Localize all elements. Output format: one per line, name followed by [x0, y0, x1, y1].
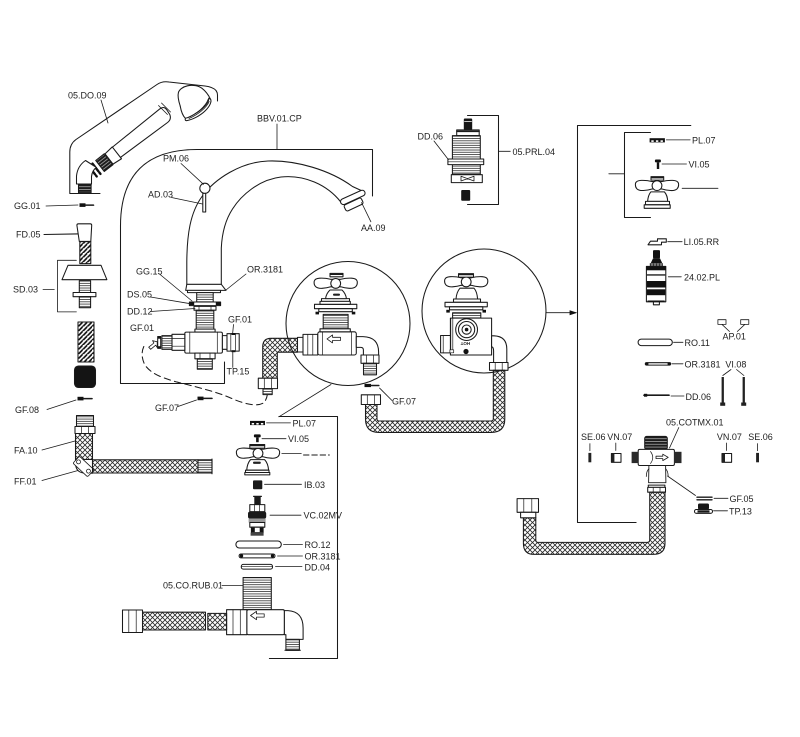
svg-text:PL.07: PL.07 — [692, 136, 716, 146]
svg-text:DD.04: DD.04 — [305, 563, 331, 573]
svg-text:DD.12: DD.12 — [127, 307, 153, 317]
svg-text:VN.07: VN.07 — [717, 432, 742, 442]
svg-text:IB.03: IB.03 — [304, 480, 325, 490]
svg-text:FA.10: FA.10 — [14, 446, 38, 456]
svg-text:VC.02MV: VC.02MV — [304, 511, 343, 521]
svg-text:RO.12: RO.12 — [305, 540, 331, 550]
svg-text:DD.06: DD.06 — [686, 392, 712, 402]
svg-text:LI.05.RR: LI.05.RR — [684, 237, 720, 247]
svg-text:FF.01: FF.01 — [14, 477, 37, 487]
svg-text:OR.3181: OR.3181 — [305, 552, 341, 562]
svg-text:GG.15: GG.15 — [136, 267, 163, 277]
svg-text:TP.15: TP.15 — [227, 367, 250, 377]
svg-text:RO.11: RO.11 — [685, 338, 710, 348]
svg-text:SE.06: SE.06 — [748, 432, 773, 442]
svg-text:GF.05: GF.05 — [730, 494, 754, 504]
svg-text:VN.07: VN.07 — [607, 432, 632, 442]
svg-text:GF.07: GF.07 — [392, 397, 416, 407]
svg-text:AD.03: AD.03 — [148, 190, 173, 200]
svg-text:05.COTMX.01: 05.COTMX.01 — [666, 417, 724, 427]
svg-text:24.02.PL: 24.02.PL — [684, 272, 720, 282]
svg-text:SE.06: SE.06 — [581, 432, 606, 442]
svg-text:VI.05: VI.05 — [288, 434, 309, 444]
svg-text:GF.08: GF.08 — [15, 405, 39, 415]
svg-text:05.PRL.04: 05.PRL.04 — [513, 147, 556, 157]
svg-text:05.CO.RUB.01: 05.CO.RUB.01 — [163, 581, 223, 591]
svg-text:BBV.01.CP: BBV.01.CP — [257, 114, 302, 124]
svg-text:TP.13: TP.13 — [729, 506, 752, 516]
svg-text:05.DO.09: 05.DO.09 — [68, 91, 107, 101]
svg-text:DD.06: DD.06 — [418, 132, 444, 142]
svg-text:FD.05: FD.05 — [16, 230, 41, 240]
svg-text:OR.3181: OR.3181 — [247, 265, 283, 275]
svg-text:DS.05: DS.05 — [127, 290, 152, 300]
svg-text:OR.3181: OR.3181 — [685, 359, 721, 369]
svg-text:SD.03: SD.03 — [13, 285, 38, 295]
svg-text:AA.09: AA.09 — [361, 223, 386, 233]
svg-text:GF.01: GF.01 — [228, 315, 252, 325]
svg-text:GF.07: GF.07 — [155, 403, 179, 413]
svg-text:GG.01: GG.01 — [14, 201, 41, 211]
svg-text:GF.01: GF.01 — [130, 323, 154, 333]
svg-text:VI.08: VI.08 — [725, 359, 746, 369]
svg-text:VI.05: VI.05 — [689, 160, 710, 170]
svg-text:PM.06: PM.06 — [163, 154, 189, 164]
svg-text:HOT: HOT — [460, 341, 470, 346]
svg-text:PL.07: PL.07 — [293, 419, 317, 429]
svg-text:AP.01: AP.01 — [723, 332, 746, 342]
